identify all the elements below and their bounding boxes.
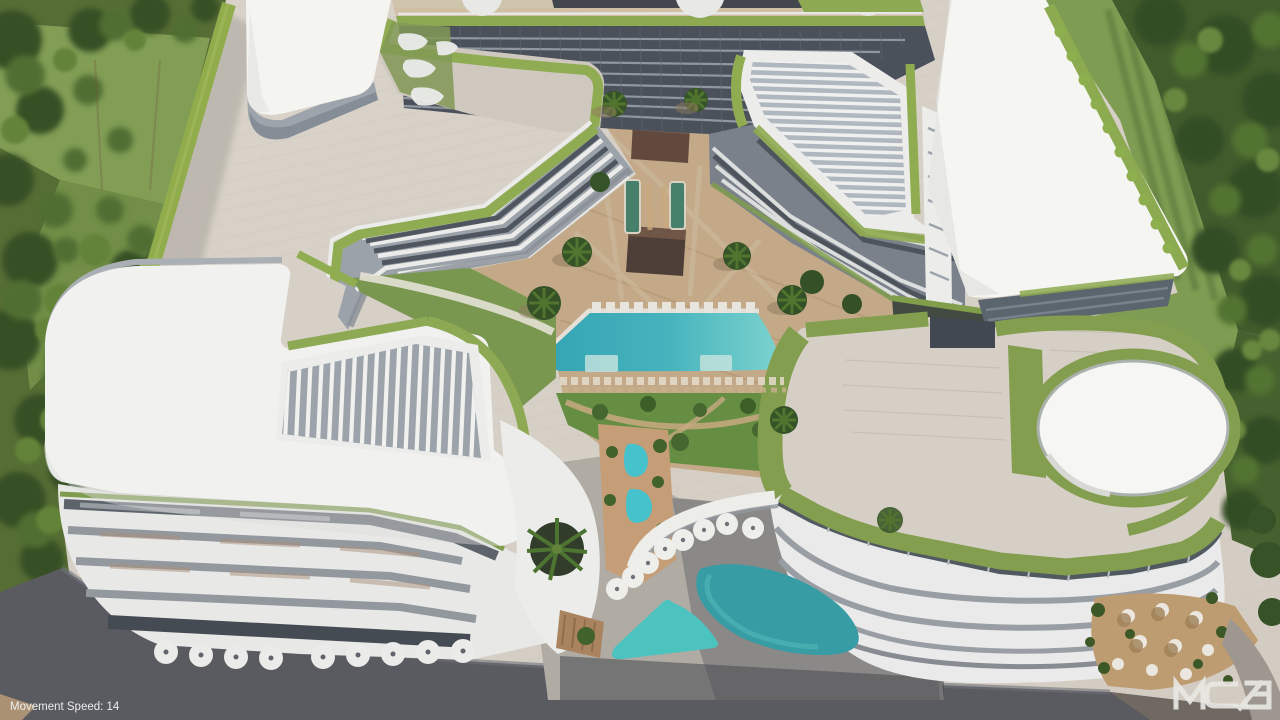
svg-text:Movement Speed: 14: Movement Speed: 14 (10, 701, 120, 713)
